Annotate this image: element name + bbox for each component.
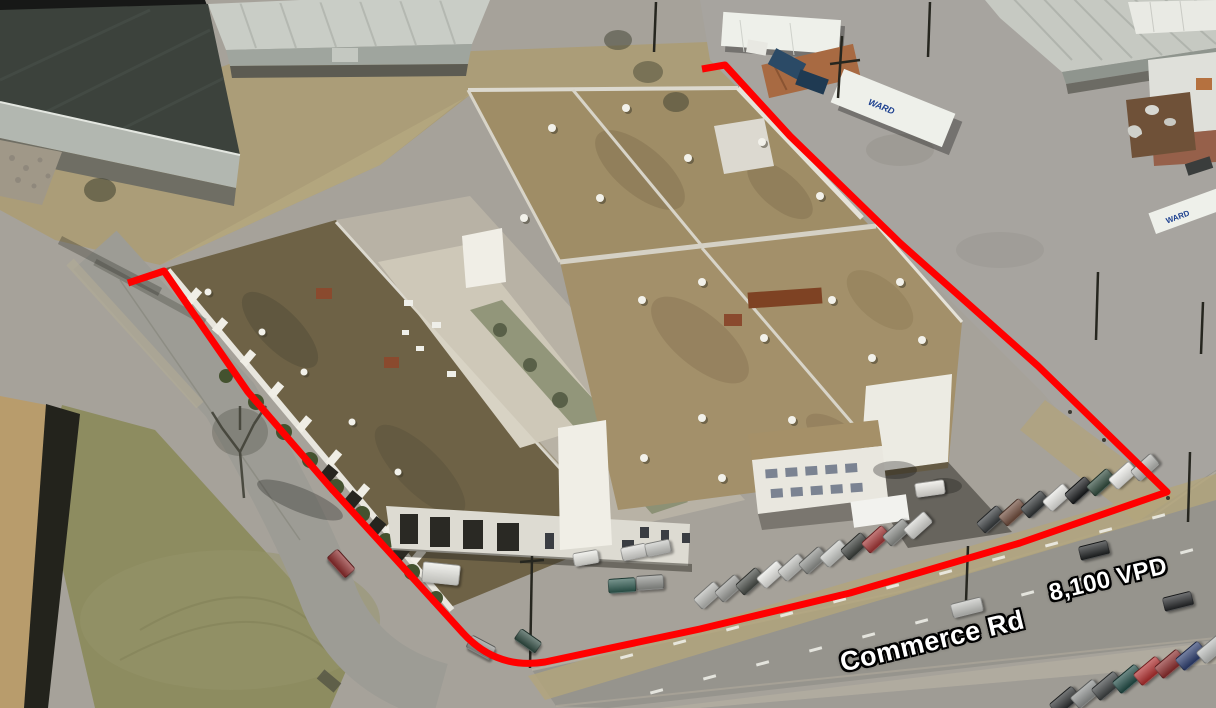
vehicle [572,549,600,567]
vehicle [421,561,461,586]
vehicle [1078,539,1111,561]
vehicles-layer [0,0,1216,708]
vehicle [608,577,637,594]
vehicle [465,634,497,660]
vehicle [644,538,672,557]
vehicle [513,628,542,654]
vehicle [1130,452,1161,482]
vehicle [326,548,356,579]
vehicle [636,574,665,591]
vehicle [903,510,934,540]
aerial-photo-scene: WARD WARD [0,0,1216,708]
vehicle [914,478,946,497]
vehicle [1162,590,1195,612]
